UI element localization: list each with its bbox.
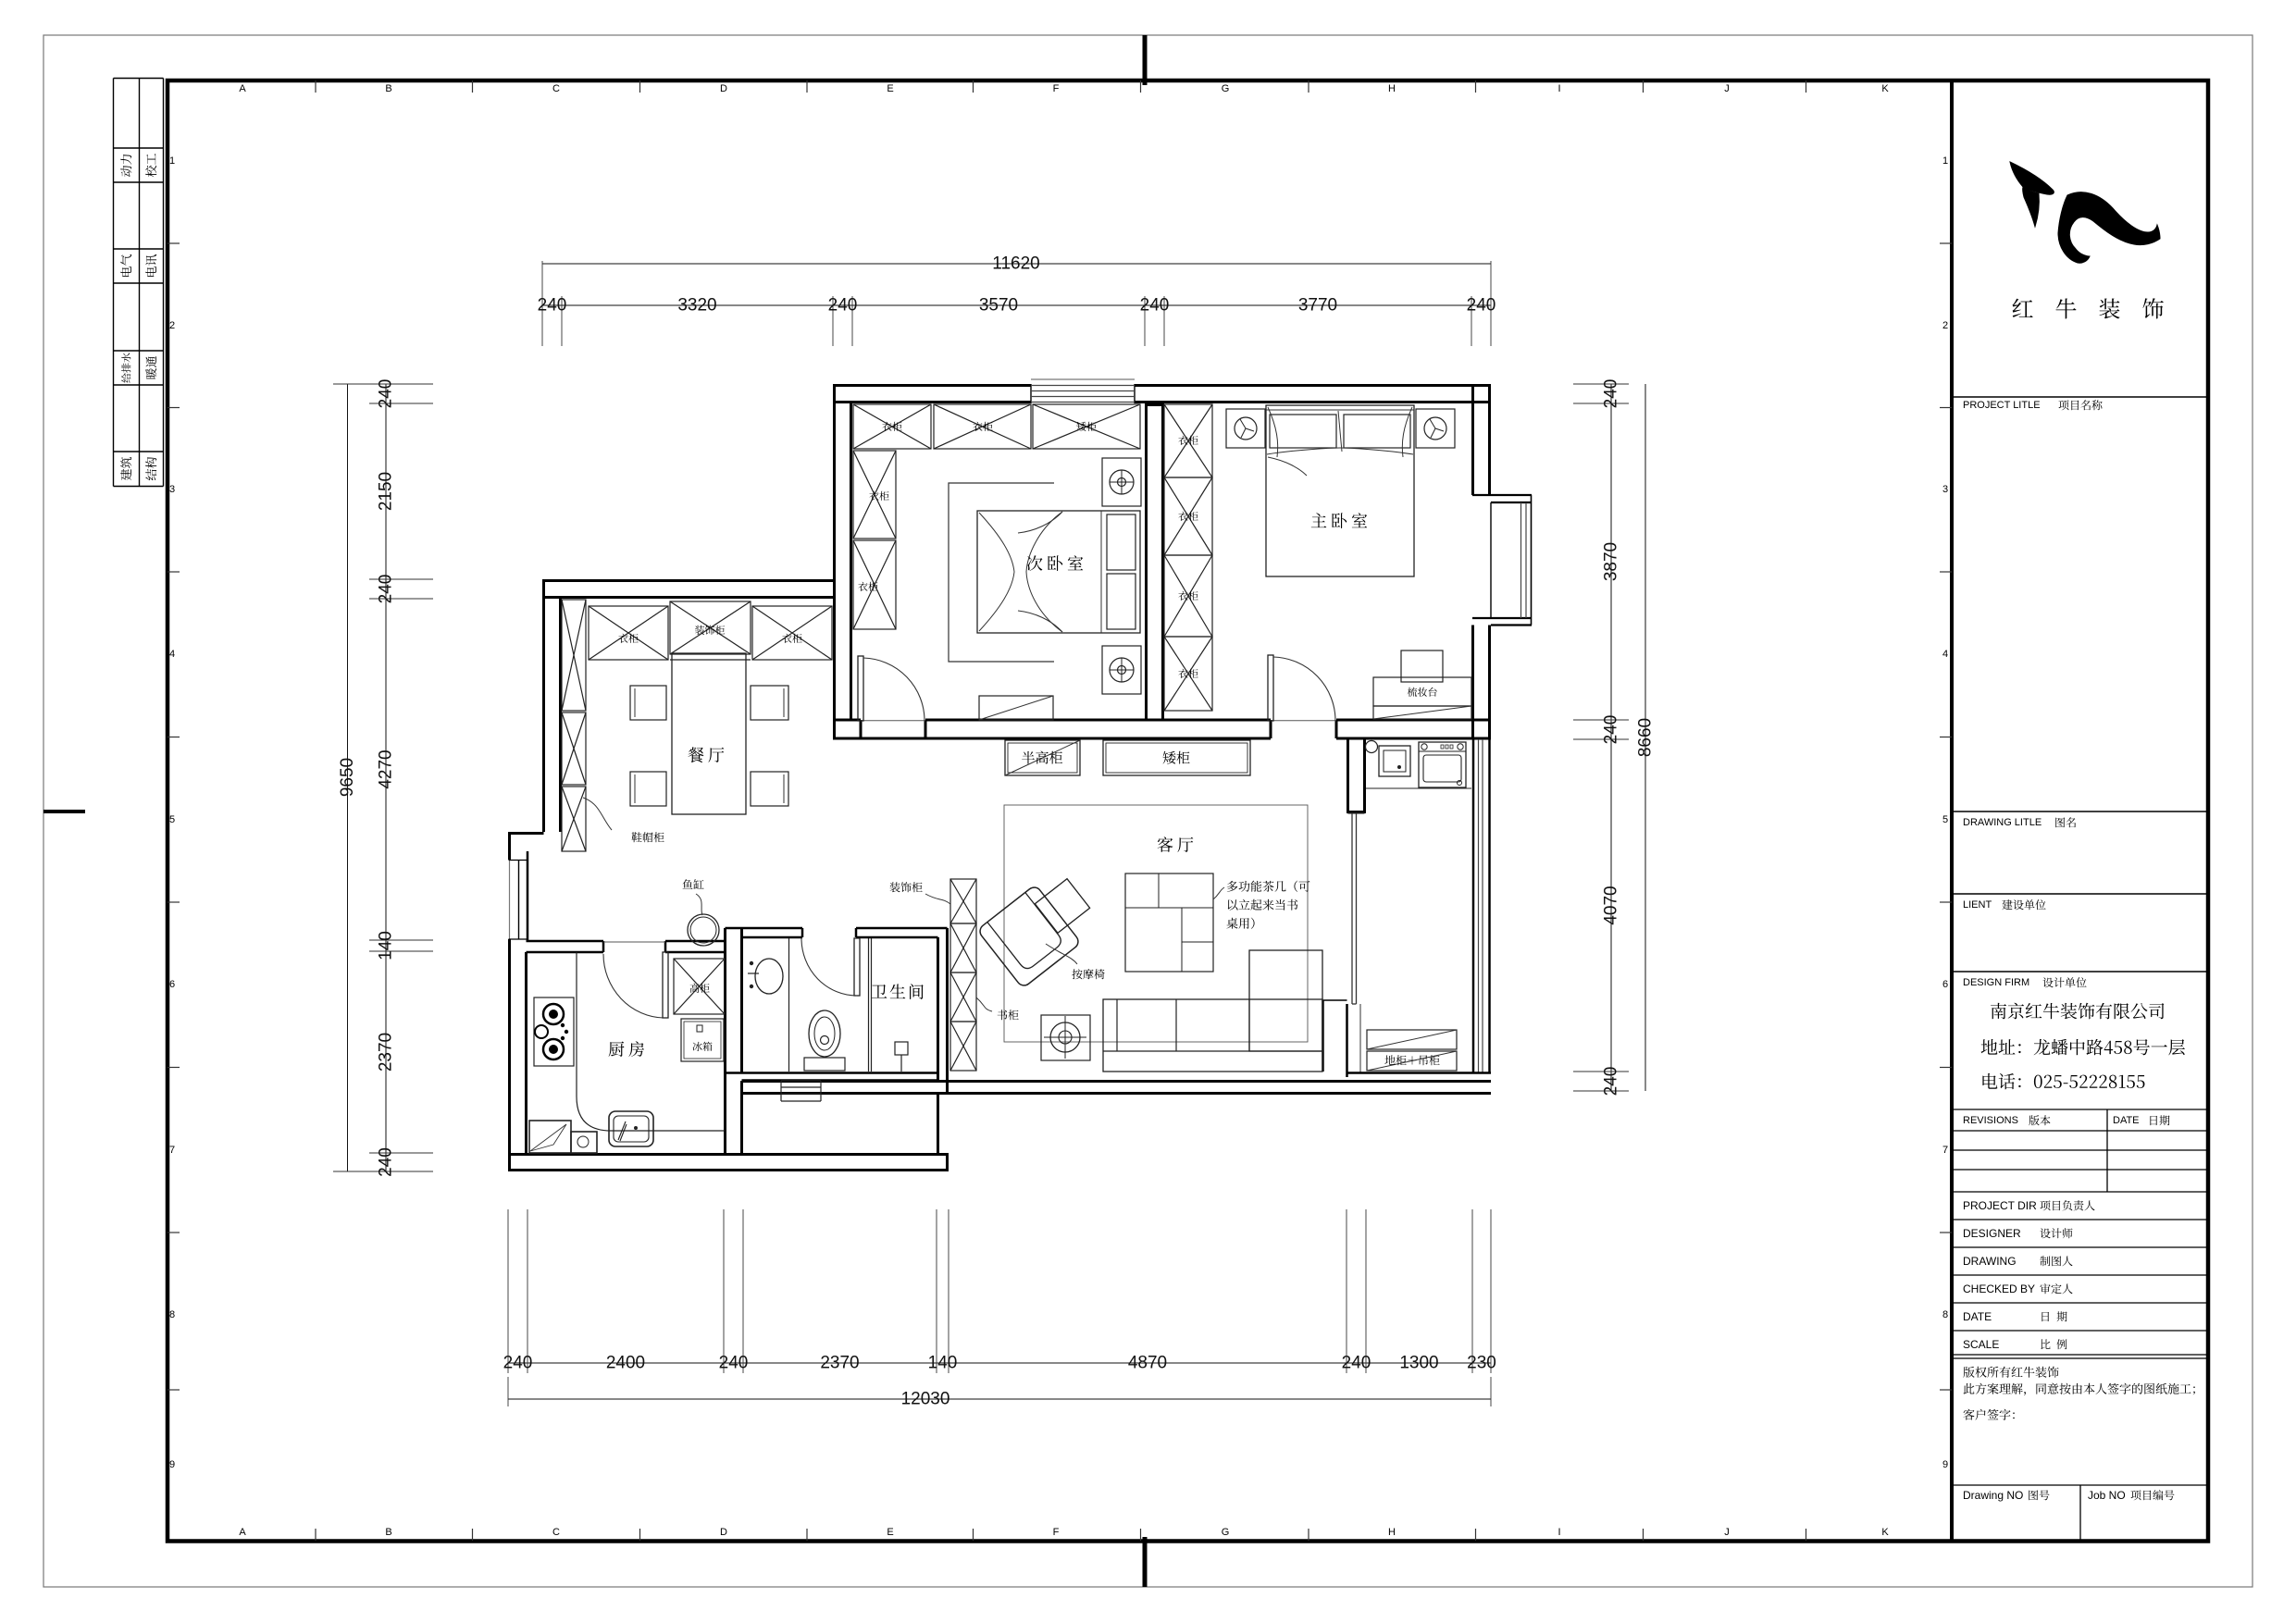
svg-text:LIENT: LIENT: [1963, 899, 1992, 911]
svg-text:E: E: [887, 1527, 893, 1538]
svg-text:A: A: [239, 83, 246, 94]
svg-text:240: 240: [377, 379, 396, 409]
svg-text:3: 3: [169, 484, 175, 495]
svg-text:4870: 4870: [1128, 1354, 1167, 1373]
svg-text:3870: 3870: [1602, 542, 1621, 581]
svg-text:240: 240: [1602, 1067, 1621, 1096]
svg-text:K: K: [1881, 83, 1889, 94]
svg-text:B: B: [385, 1527, 391, 1538]
svg-text:I: I: [1558, 83, 1560, 94]
svg-text:9: 9: [169, 1459, 175, 1470]
svg-text:240: 240: [503, 1354, 533, 1373]
svg-text:240: 240: [1602, 715, 1621, 745]
svg-text:DRAWING: DRAWING: [1963, 1255, 2017, 1268]
svg-text:DESIGNER: DESIGNER: [1963, 1227, 2021, 1240]
svg-text:PROJECT LITLE: PROJECT LITLE: [1963, 400, 2041, 411]
svg-text:Drawing NO: Drawing NO: [1963, 1489, 2023, 1502]
svg-text:SCALE: SCALE: [1963, 1338, 1999, 1351]
svg-text:8: 8: [169, 1309, 175, 1320]
svg-text:8660: 8660: [1636, 718, 1656, 757]
svg-text:5: 5: [169, 814, 175, 825]
svg-text:G: G: [1222, 83, 1230, 94]
svg-text:1: 1: [169, 155, 175, 167]
svg-text:DRAWING LITLE: DRAWING LITLE: [1963, 817, 2042, 828]
svg-text:240: 240: [1467, 296, 1496, 316]
svg-text:2400: 2400: [606, 1354, 645, 1373]
svg-text:7: 7: [1942, 1145, 1948, 1156]
svg-text:4270: 4270: [377, 750, 396, 788]
svg-text:5: 5: [1942, 814, 1948, 825]
svg-text:240: 240: [377, 1147, 396, 1177]
svg-text:DESIGN FIRM: DESIGN FIRM: [1963, 977, 2029, 988]
svg-text:11620: 11620: [992, 254, 1039, 274]
svg-text:6: 6: [169, 979, 175, 990]
svg-text:12030: 12030: [901, 1390, 950, 1409]
svg-text:I: I: [1558, 1527, 1560, 1538]
svg-text:140: 140: [377, 931, 396, 960]
svg-text:K: K: [1881, 1527, 1889, 1538]
svg-text:140: 140: [928, 1354, 958, 1373]
svg-text:3570: 3570: [979, 296, 1018, 316]
svg-text:2370: 2370: [377, 1033, 396, 1072]
svg-text:2370: 2370: [820, 1354, 859, 1373]
svg-text:4070: 4070: [1602, 886, 1621, 924]
svg-text:J: J: [1724, 83, 1730, 94]
svg-text:CHECKED BY: CHECKED BY: [1963, 1282, 2035, 1295]
svg-text:9: 9: [1942, 1459, 1948, 1470]
svg-text:8: 8: [1942, 1309, 1948, 1320]
svg-text:240: 240: [538, 296, 567, 316]
svg-text:240: 240: [828, 296, 858, 316]
svg-text:C: C: [552, 83, 560, 94]
svg-text:240: 240: [719, 1354, 749, 1373]
svg-text:DATE: DATE: [2113, 1115, 2140, 1126]
svg-text:REVISIONS: REVISIONS: [1963, 1115, 2018, 1126]
svg-text:J: J: [1724, 1527, 1730, 1538]
svg-text:1: 1: [1942, 155, 1948, 167]
svg-text:PROJECT DIR: PROJECT DIR: [1963, 1199, 2037, 1212]
svg-text:240: 240: [1602, 379, 1621, 409]
svg-text:4: 4: [1942, 649, 1948, 660]
svg-text:B: B: [385, 83, 391, 94]
svg-text:Job NO: Job NO: [2088, 1489, 2126, 1502]
svg-text:230: 230: [1467, 1354, 1496, 1373]
svg-text:3: 3: [1942, 484, 1948, 495]
svg-text:2: 2: [169, 320, 175, 331]
svg-text:7: 7: [169, 1145, 175, 1156]
svg-text:D: D: [720, 1527, 727, 1538]
svg-text:G: G: [1222, 1527, 1230, 1538]
svg-text:2150: 2150: [377, 472, 396, 511]
svg-text:240: 240: [377, 575, 396, 604]
svg-text:4: 4: [169, 649, 175, 660]
svg-text:H: H: [1388, 83, 1396, 94]
svg-text:9650: 9650: [338, 758, 357, 797]
svg-text:6: 6: [1942, 979, 1948, 990]
svg-text:H: H: [1388, 1527, 1396, 1538]
svg-text:3770: 3770: [1298, 296, 1337, 316]
svg-text:F: F: [1053, 1527, 1060, 1538]
svg-text:D: D: [720, 83, 727, 94]
svg-text:E: E: [887, 83, 893, 94]
svg-text:A: A: [239, 1527, 246, 1538]
svg-text:240: 240: [1140, 296, 1170, 316]
svg-text:C: C: [552, 1527, 560, 1538]
svg-text:2: 2: [1942, 320, 1948, 331]
svg-text:DATE: DATE: [1963, 1310, 1992, 1323]
svg-text:240: 240: [1342, 1354, 1371, 1373]
svg-text:3320: 3320: [677, 296, 716, 316]
svg-text:1300: 1300: [1399, 1354, 1438, 1373]
svg-text:F: F: [1053, 83, 1060, 94]
